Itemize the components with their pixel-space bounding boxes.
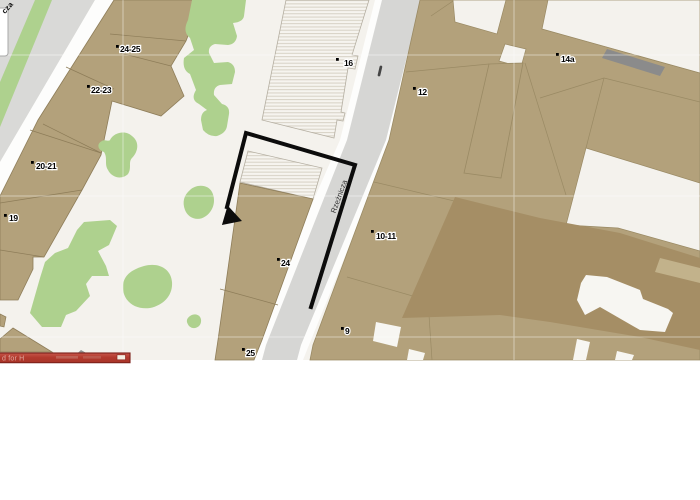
svg-text:10-11: 10-11 (376, 231, 396, 241)
svg-text:20-21: 20-21 (36, 161, 57, 171)
svg-text:d for H: d for H (2, 356, 24, 363)
svg-text:16: 16 (344, 58, 353, 68)
svg-text:25: 25 (246, 348, 255, 358)
svg-text:9: 9 (345, 326, 350, 336)
svg-text:14a: 14a (561, 54, 575, 64)
svg-text:24-25: 24-25 (120, 44, 141, 54)
svg-text:12: 12 (418, 87, 427, 97)
svg-text:22-23: 22-23 (91, 85, 112, 95)
svg-text:24: 24 (281, 258, 290, 268)
svg-text:19: 19 (9, 213, 18, 223)
